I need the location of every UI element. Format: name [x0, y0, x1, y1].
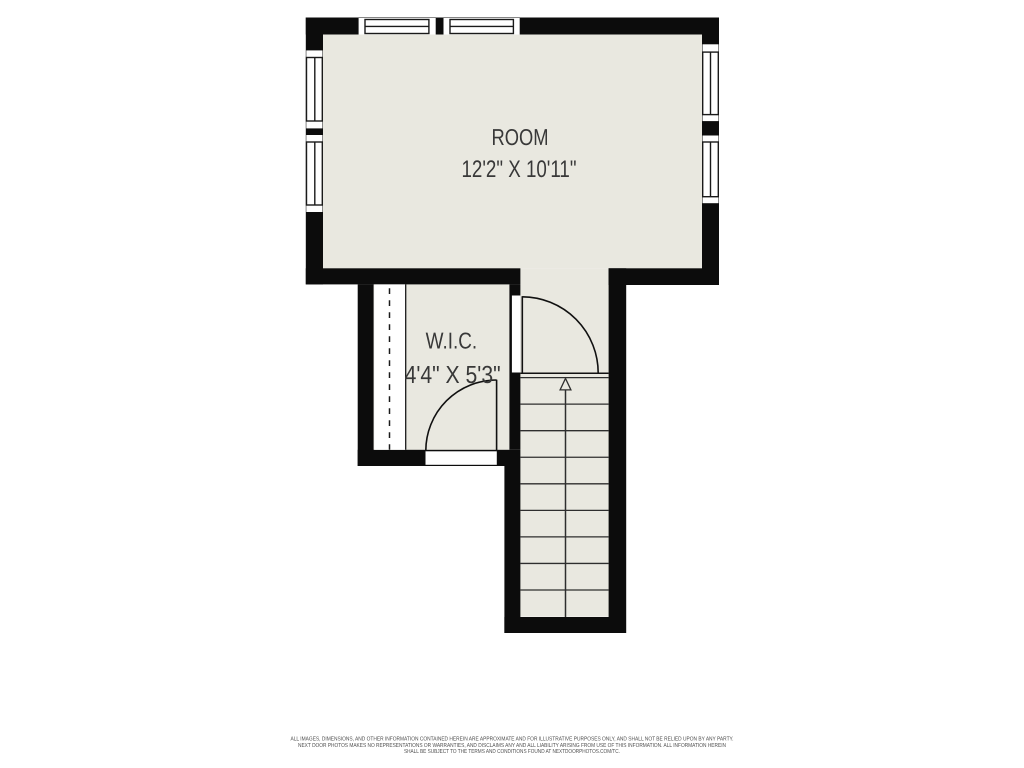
svg-text:NEXT DOOR PHOTOS MAKES NO REPR: NEXT DOOR PHOTOS MAKES NO REPRESENTATION…	[298, 742, 726, 749]
svg-text:4'4" X 5'3": 4'4" X 5'3"	[405, 362, 501, 389]
svg-text:SHALL BE SUBJECT TO THE TERMS: SHALL BE SUBJECT TO THE TERMS AND CONDIT…	[404, 748, 620, 755]
svg-text:ALL IMAGES, DIMENSIONS, AND OT: ALL IMAGES, DIMENSIONS, AND OTHER INFORM…	[291, 736, 734, 743]
svg-text:12'2" X 10'11": 12'2" X 10'11"	[462, 156, 577, 183]
svg-text:W.I.C.: W.I.C.	[426, 328, 478, 354]
svg-text:ROOM: ROOM	[492, 124, 549, 150]
